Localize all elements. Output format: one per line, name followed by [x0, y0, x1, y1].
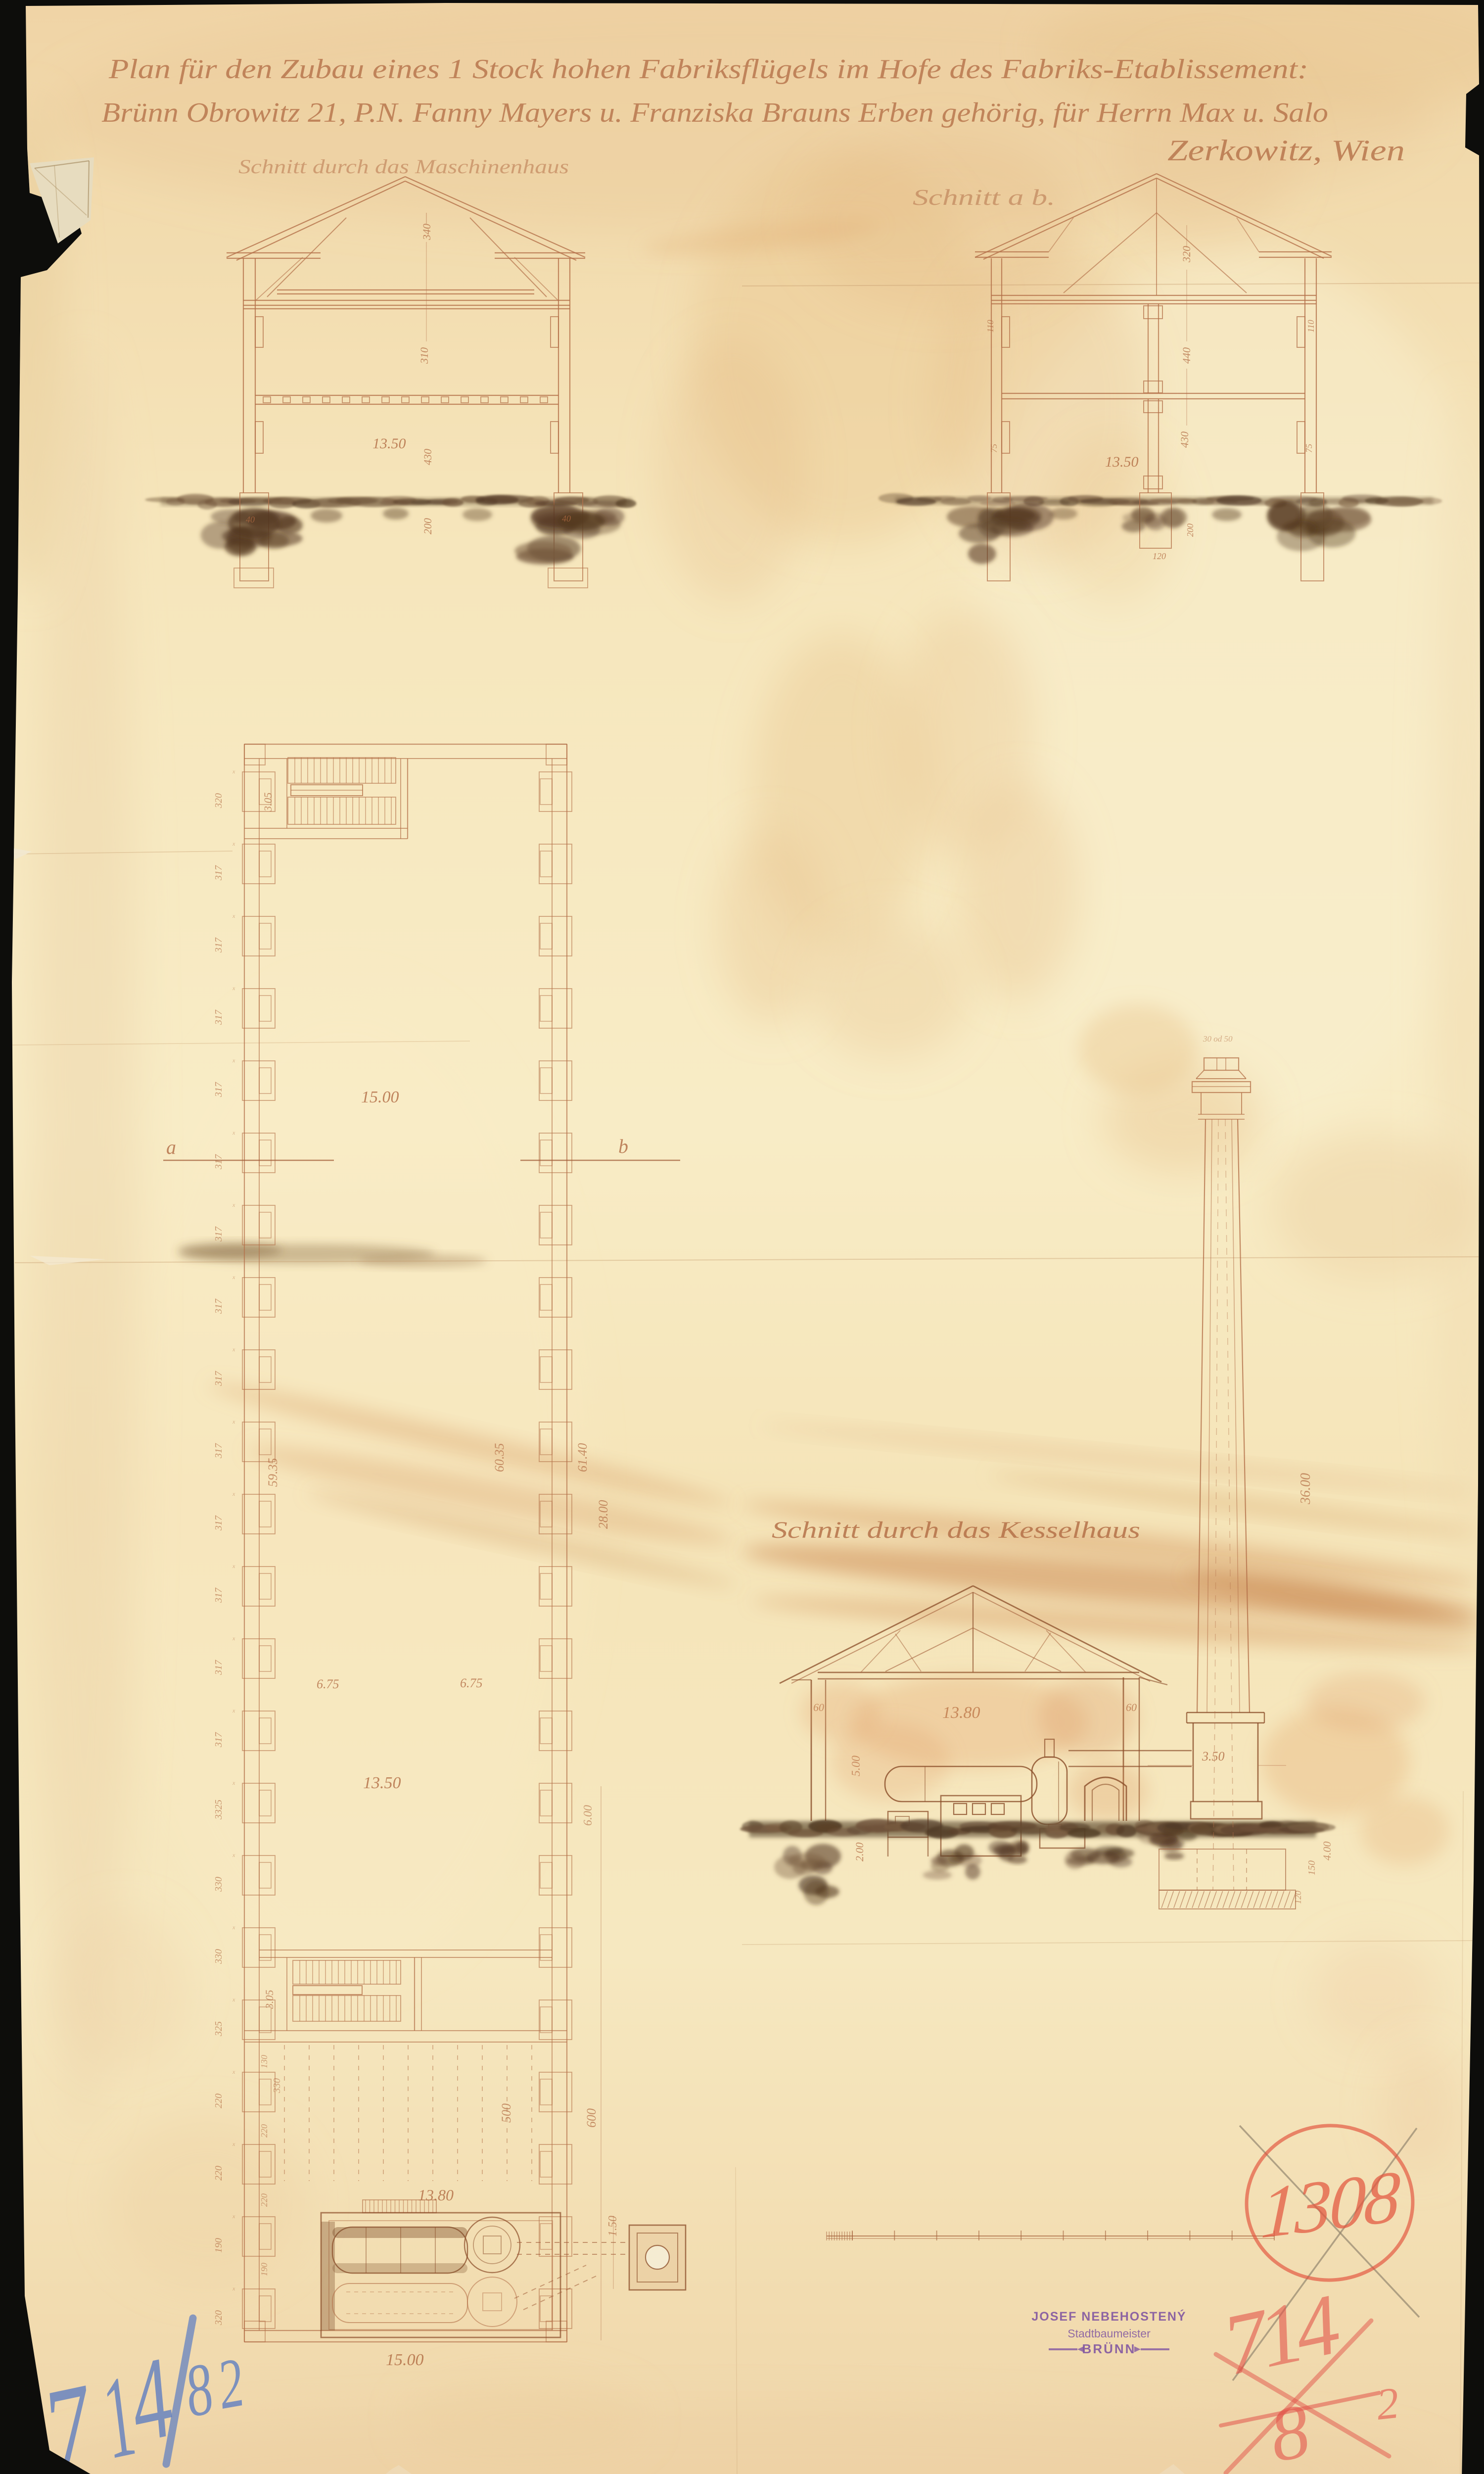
svg-text:317: 317: [213, 1082, 224, 1097]
svg-text:BRÜNN: BRÜNN: [1082, 2341, 1136, 2356]
svg-text:317: 317: [213, 865, 224, 881]
svg-text:320: 320: [213, 2310, 224, 2326]
svg-text:13.80: 13.80: [418, 2186, 454, 2204]
svg-text:x: x: [232, 1563, 235, 1570]
svg-text:Schnitt durch das Kesselhaus: Schnitt durch das Kesselhaus: [772, 1517, 1140, 1543]
svg-text:317: 317: [213, 1587, 224, 1603]
svg-text:600: 600: [584, 2108, 599, 2128]
svg-text:150: 150: [1306, 1860, 1317, 1875]
svg-text:110: 110: [985, 320, 995, 333]
svg-text:430: 430: [421, 449, 434, 465]
svg-text:Stadtbaumeister: Stadtbaumeister: [1067, 2327, 1151, 2340]
svg-text:440: 440: [1180, 347, 1193, 364]
svg-text:x: x: [232, 1274, 235, 1281]
svg-text:Schnitt a b.: Schnitt a b.: [913, 185, 1055, 210]
svg-text:190: 190: [259, 2263, 269, 2276]
svg-text:x: x: [232, 985, 235, 992]
svg-text:40: 40: [246, 515, 255, 524]
svg-text:x: x: [232, 1057, 235, 1064]
svg-text:75: 75: [989, 444, 999, 453]
svg-text:28.00: 28.00: [596, 1500, 610, 1529]
svg-text:Brünn Obrowitz 21, P.N. Fanny: Brünn Obrowitz 21, P.N. Fanny Mayers u. …: [101, 97, 1328, 128]
svg-text:310: 310: [418, 347, 430, 364]
svg-text:30 od 50: 30 od 50: [1203, 1034, 1233, 1044]
svg-text:4.00: 4.00: [1321, 1842, 1333, 1861]
svg-text:b: b: [618, 1135, 628, 1157]
svg-text:15.00: 15.00: [361, 1088, 399, 1106]
svg-text:190: 190: [213, 2238, 224, 2253]
svg-text:317: 317: [213, 1154, 224, 1170]
svg-text:x: x: [232, 2213, 235, 2220]
svg-text:1308: 1308: [1259, 2155, 1401, 2254]
svg-text:3.50: 3.50: [1202, 1749, 1225, 1763]
svg-text:36.00: 36.00: [1298, 1473, 1313, 1505]
svg-text:200: 200: [1185, 523, 1195, 537]
svg-text:x: x: [232, 1418, 235, 1425]
svg-text:317: 317: [213, 1443, 224, 1459]
svg-text:120: 120: [1153, 551, 1166, 561]
svg-text:Zerkowitz, Wien: Zerkowitz, Wien: [1167, 134, 1405, 167]
svg-text:330: 330: [213, 1949, 224, 1964]
svg-text:220: 220: [213, 2093, 224, 2108]
svg-text:220: 220: [259, 2193, 269, 2207]
svg-text:320: 320: [1180, 246, 1193, 263]
svg-text:6.75: 6.75: [317, 1677, 339, 1691]
svg-text:340: 340: [420, 224, 433, 240]
svg-text:59.35: 59.35: [266, 1458, 280, 1487]
svg-text:430: 430: [1178, 431, 1191, 448]
svg-text:x: x: [232, 1635, 235, 1642]
svg-text:x: x: [232, 1996, 235, 2003]
svg-text:200: 200: [421, 518, 434, 534]
svg-text:317: 317: [213, 1732, 224, 1748]
svg-text:317: 317: [213, 937, 224, 953]
svg-text:75: 75: [1304, 444, 1314, 453]
svg-text:220: 220: [213, 2166, 224, 2181]
svg-text:Schnitt durch das Maschinenhau: Schnitt durch das Maschinenhaus: [238, 155, 569, 178]
svg-text:x: x: [232, 912, 235, 919]
svg-text:3.05: 3.05: [262, 793, 274, 812]
svg-text:13.50: 13.50: [372, 435, 406, 452]
svg-text:JOSEF NEBEHOSTENÝ: JOSEF NEBEHOSTENÝ: [1031, 2309, 1186, 2324]
svg-text:x: x: [232, 1201, 235, 1208]
svg-text:x: x: [232, 1707, 235, 1714]
svg-text:130: 130: [259, 2055, 269, 2068]
svg-text:15.00: 15.00: [386, 2351, 424, 2369]
svg-text:3325: 3325: [213, 1800, 224, 1820]
svg-text:1.50: 1.50: [606, 2216, 619, 2236]
svg-text:x: x: [232, 768, 235, 775]
svg-text:500: 500: [499, 2103, 513, 2123]
svg-text:317: 317: [213, 1298, 224, 1314]
svg-text:2.00: 2.00: [853, 1843, 866, 1862]
svg-text:330: 330: [272, 2078, 282, 2093]
svg-text:x: x: [232, 2068, 235, 2075]
svg-text:220: 220: [259, 2124, 269, 2138]
svg-text:330: 330: [213, 1877, 224, 1892]
svg-text:317: 317: [213, 1226, 224, 1242]
svg-text:6.75: 6.75: [460, 1676, 483, 1690]
svg-text:x: x: [232, 1490, 235, 1497]
svg-text:325: 325: [213, 2021, 224, 2037]
svg-text:x: x: [232, 1924, 235, 1931]
svg-text:x: x: [232, 1852, 235, 1858]
svg-text:317: 317: [213, 1515, 224, 1531]
svg-text:317: 317: [213, 1009, 224, 1025]
svg-text:x: x: [232, 840, 235, 847]
svg-text:x: x: [232, 2285, 235, 2292]
svg-text:120: 120: [1293, 1891, 1303, 1904]
svg-text:x: x: [232, 1129, 235, 1136]
svg-text:317: 317: [213, 1660, 224, 1675]
svg-text:110: 110: [1306, 320, 1316, 333]
svg-text:x: x: [232, 1779, 235, 1786]
svg-text:a: a: [166, 1136, 176, 1158]
svg-text:13.50: 13.50: [1105, 454, 1139, 470]
svg-text:x: x: [232, 2141, 235, 2147]
svg-text:6.00: 6.00: [582, 1805, 595, 1826]
svg-text:40: 40: [562, 514, 571, 523]
svg-text:320: 320: [213, 793, 224, 809]
svg-text:60.35: 60.35: [492, 1443, 507, 1473]
svg-text:Plan für den Zubau eines 1 Sto: Plan für den Zubau eines 1 Stock hohen F…: [108, 54, 1308, 85]
svg-text:x: x: [232, 1346, 235, 1353]
svg-text:317: 317: [213, 1371, 224, 1386]
svg-text:3.05: 3.05: [263, 1990, 276, 2010]
svg-text:13.50: 13.50: [363, 1774, 401, 1792]
svg-text:61.40: 61.40: [575, 1443, 590, 1473]
